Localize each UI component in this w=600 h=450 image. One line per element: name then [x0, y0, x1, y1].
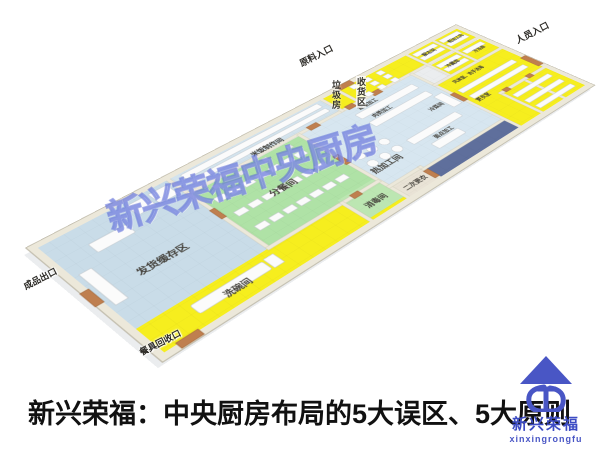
logo-triangle [520, 356, 572, 384]
logo-mark-icon [514, 354, 578, 412]
caption-title: 新兴荣福：中央厨房布局的5大误区、5大原则 [28, 392, 571, 431]
finished-goods-exit-label: 成品出口 [21, 264, 59, 292]
logo-t-glyph [538, 389, 555, 408]
receiving-area-label: 收货区 [356, 76, 366, 108]
raw-material-entrance-label: 原料入口 [297, 41, 335, 69]
company-logo: 新兴荣福 xinxingrongfu [496, 354, 596, 444]
kitchen-layout-image: 发货缓存区 分餐间 米饭制作间 热加工间 消毒间 二次更衣 洗碗间 解冻间 粗加… [0, 0, 600, 450]
logo-company-name: 新兴荣福 [496, 413, 596, 434]
personnel-entrance-label: 人员入口 [513, 18, 551, 46]
logo-romanized-name: xinxingrongfu [496, 434, 596, 444]
garbage-room-label: 垃圾房 [331, 80, 341, 110]
